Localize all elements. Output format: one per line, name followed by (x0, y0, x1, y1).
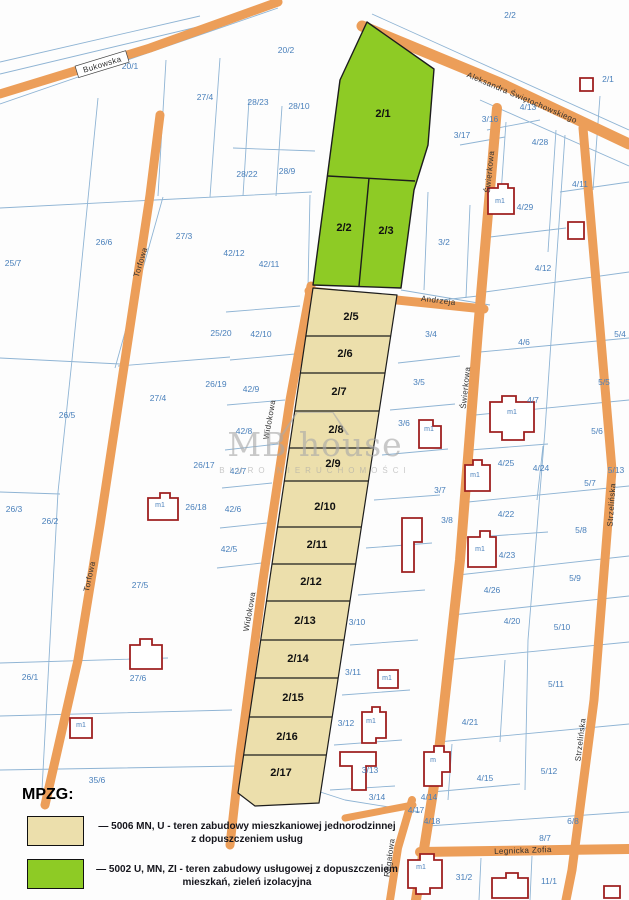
parcel-number-label: 4/26 (484, 585, 501, 595)
parcel-number-label: 26/5 (59, 410, 76, 420)
svg-text:Strzelińska: Strzelińska (605, 483, 617, 527)
parcel-number-label: 5/10 (554, 622, 571, 632)
parcel-number-label: 20/2 (278, 45, 295, 55)
parcel-number-label: 3/4 (425, 329, 437, 339)
svg-text:2/15: 2/15 (282, 692, 303, 704)
svg-text:4/11: 4/11 (572, 179, 588, 189)
svg-text:4/22: 4/22 (498, 509, 515, 519)
parcel-number-label: 26/18 (185, 502, 207, 512)
svg-text:27/4: 27/4 (150, 393, 167, 403)
svg-text:4/7: 4/7 (527, 395, 539, 405)
parcel-number-label: 42/7 (230, 466, 247, 476)
parcel-number-label: 28/10 (288, 101, 310, 111)
parcel-number-label: 4/11 (572, 179, 588, 189)
parcel-number-label: 3/17 (454, 130, 471, 140)
parcel-number-label: 4/14 (421, 792, 438, 802)
legend-line: — 5006 MN, U - teren zabudowy mieszkanio… (88, 820, 406, 833)
parcel-number-label: 4/29 (517, 202, 534, 212)
svg-text:4/17: 4/17 (408, 805, 425, 815)
parcel-number-label: 26/17 (193, 460, 215, 470)
parcel-number-label: 42/10 (250, 329, 272, 339)
parcel-number-label: 27/4 (150, 393, 167, 403)
plot-number-label: 2/7 (331, 386, 346, 398)
svg-text:28/10: 28/10 (288, 101, 310, 111)
svg-text:5/13: 5/13 (608, 465, 625, 475)
building-outline (568, 222, 584, 239)
svg-text:m1: m1 (76, 722, 86, 729)
building-m1-label: m1 (366, 718, 376, 725)
parcel-number-label: 28/22 (236, 169, 258, 179)
svg-text:28/22: 28/22 (236, 169, 258, 179)
building-outline (492, 873, 528, 898)
parcel-number-label: 5/13 (608, 465, 625, 475)
svg-text:26/2: 26/2 (42, 516, 59, 526)
svg-text:2/3: 2/3 (378, 225, 393, 237)
cadastral-map-image: 20/120/22/22/127/428/2328/1028/2228/93/1… (0, 0, 629, 900)
svg-text:11/1: 11/1 (541, 876, 557, 886)
parcel-number-label: 3/5 (413, 377, 425, 387)
parcel-number-label: 3/11 (345, 667, 361, 677)
svg-text:3/16: 3/16 (482, 114, 499, 124)
parcel-number-label: 4/28 (532, 137, 549, 147)
svg-text:4/14: 4/14 (421, 792, 438, 802)
svg-text:m1: m1 (507, 409, 517, 416)
building-m1-label: m1 (470, 472, 480, 479)
building-outline (419, 420, 441, 448)
svg-text:m1: m1 (475, 546, 485, 553)
svg-text:3/5: 3/5 (413, 377, 425, 387)
plot-number-label: 2/1 (375, 108, 390, 120)
svg-text:25/7: 25/7 (5, 258, 22, 268)
building-m1-label: m1 (76, 722, 86, 729)
svg-text:2/17: 2/17 (270, 767, 291, 779)
building-m1-label: m (430, 757, 436, 764)
parcel-number-label: 3/13 (362, 765, 379, 775)
parcel-number-label: 4/6 (518, 337, 530, 347)
parcel-number-label: 3/16 (482, 114, 499, 124)
svg-text:42/10: 42/10 (250, 329, 272, 339)
svg-text:3/8: 3/8 (441, 515, 453, 525)
svg-text:26/5: 26/5 (59, 410, 76, 420)
parcel-number-label: 26/2 (42, 516, 59, 526)
svg-text:3/2: 3/2 (438, 237, 450, 247)
building-m1-label: m1 (424, 426, 434, 433)
svg-text:8/7: 8/7 (539, 833, 551, 843)
parcel-number-label: 3/7 (434, 485, 446, 495)
svg-text:4/23: 4/23 (499, 550, 516, 560)
parcel-number-label: 35/6 (89, 775, 106, 785)
legend-item-u-mn-zi: — 5002 U, MN, ZI - teren zabudowy usługo… (88, 863, 406, 889)
road-name-label: Strzelińska (605, 483, 617, 527)
svg-text:2/9: 2/9 (325, 458, 340, 470)
parcel-number-label: 42/5 (221, 544, 238, 554)
parcel-number-label: 4/23 (499, 550, 516, 560)
parcel-number-label: 3/8 (441, 515, 453, 525)
svg-text:42/9: 42/9 (243, 384, 260, 394)
parcel-number-label: 5/11 (548, 679, 564, 689)
svg-text:2/7: 2/7 (331, 386, 346, 398)
plot-number-label: 2/15 (282, 692, 303, 704)
svg-text:3/4: 3/4 (425, 329, 437, 339)
svg-text:2/16: 2/16 (276, 731, 297, 743)
parcel-number-label: 26/1 (22, 672, 39, 682)
svg-text:35/6: 35/6 (89, 775, 106, 785)
svg-text:27/6: 27/6 (130, 673, 147, 683)
svg-text:42/8: 42/8 (236, 426, 253, 436)
svg-text:4/18: 4/18 (424, 816, 441, 826)
svg-text:3/12: 3/12 (338, 718, 355, 728)
svg-text:42/6: 42/6 (225, 504, 242, 514)
svg-text:2/14: 2/14 (287, 653, 309, 665)
plot-number-label: 2/3 (378, 225, 393, 237)
parcel-number-label: 3/6 (398, 418, 410, 428)
road-strzelinska (566, 128, 612, 900)
svg-text:5/4: 5/4 (614, 329, 626, 339)
svg-text:3/14: 3/14 (369, 792, 386, 802)
svg-text:42/5: 42/5 (221, 544, 238, 554)
parcel-number-label: 5/7 (584, 478, 596, 488)
svg-text:4/15: 4/15 (477, 773, 494, 783)
legend-item-mn-u: — 5006 MN, U - teren zabudowy mieszkanio… (88, 820, 406, 846)
building-m1-label: m1 (495, 198, 505, 205)
svg-text:4/21: 4/21 (462, 717, 479, 727)
parcel-number-label: 4/18 (424, 816, 441, 826)
svg-text:m1: m1 (416, 864, 426, 871)
svg-text:5/6: 5/6 (591, 426, 603, 436)
building-m1-label: m1 (475, 546, 485, 553)
svg-text:Widokowa: Widokowa (262, 399, 278, 440)
svg-text:3/7: 3/7 (434, 485, 446, 495)
parcel-number-label: 42/8 (236, 426, 253, 436)
parcel-number-label: 31/2 (456, 872, 473, 882)
svg-text:Torfowa: Torfowa (132, 246, 150, 278)
svg-text:3/10: 3/10 (349, 617, 366, 627)
building-outline (130, 639, 162, 669)
svg-text:4/12: 4/12 (535, 263, 552, 273)
parcel-number-label: 28/23 (247, 97, 269, 107)
svg-text:31/2: 31/2 (456, 872, 473, 882)
parcel-number-label: 2/1 (602, 74, 614, 84)
parcel-number-label: 4/20 (504, 616, 521, 626)
svg-text:27/3: 27/3 (176, 231, 193, 241)
road-bukowska (0, 2, 278, 94)
parcel-number-label: 27/5 (132, 580, 149, 590)
svg-text:2/1: 2/1 (602, 74, 614, 84)
plot-number-label: 2/12 (300, 576, 321, 588)
svg-text:2/1: 2/1 (375, 108, 390, 120)
parcel-number-label: 4/7 (527, 395, 539, 405)
svg-text:2/8: 2/8 (328, 424, 343, 436)
parcel-number-label: 6/8 (567, 816, 579, 826)
svg-text:4/24: 4/24 (533, 463, 550, 473)
parcel-number-label: 42/9 (243, 384, 260, 394)
plot-number-label: 2/6 (337, 348, 352, 360)
svg-text:2/10: 2/10 (314, 501, 335, 513)
svg-text:26/3: 26/3 (6, 504, 23, 514)
svg-text:20/2: 20/2 (278, 45, 295, 55)
parcel-number-label: 4/12 (535, 263, 552, 273)
road-name-label: Widokowa (262, 399, 278, 440)
parcel-number-label: 3/12 (338, 718, 355, 728)
svg-text:m1: m1 (382, 675, 392, 682)
building-m1-label: m1 (507, 409, 517, 416)
svg-text:27/5: 27/5 (132, 580, 149, 590)
svg-text:2/11: 2/11 (307, 539, 328, 551)
svg-text:m1: m1 (424, 426, 434, 433)
parcel-number-label: 25/7 (5, 258, 22, 268)
svg-text:3/6: 3/6 (398, 418, 410, 428)
svg-text:26/19: 26/19 (205, 379, 227, 389)
svg-text:5/5: 5/5 (598, 377, 610, 387)
plot-number-label: 2/14 (287, 653, 309, 665)
svg-text:4/29: 4/29 (517, 202, 534, 212)
svg-text:2/12: 2/12 (300, 576, 321, 588)
parcel-number-label: 4/17 (408, 805, 425, 815)
building-m1-label: m1 (155, 502, 165, 509)
parcel-number-label: 25/20 (210, 328, 232, 338)
plot-number-label: 2/10 (314, 501, 335, 513)
parcel-number-label: 5/5 (598, 377, 610, 387)
parcel-number-label: 42/11 (259, 259, 280, 269)
parcel-number-label: 2/2 (504, 10, 516, 20)
building-m1-label: m1 (416, 864, 426, 871)
road-stub (345, 805, 413, 818)
building-outline (408, 854, 442, 894)
parcel-number-label: 3/10 (349, 617, 366, 627)
svg-text:42/12: 42/12 (223, 248, 245, 258)
legend-swatch-u-mn-zi (27, 859, 84, 889)
parcel-number-label: 4/25 (498, 458, 515, 468)
parcel-number-label: 26/6 (96, 237, 113, 247)
svg-text:26/1: 26/1 (22, 672, 39, 682)
svg-text:42/7: 42/7 (230, 466, 247, 476)
parcel-number-label: 26/19 (205, 379, 227, 389)
plot-number-label: 2/13 (294, 615, 315, 627)
svg-text:4/6: 4/6 (518, 337, 530, 347)
svg-text:26/17: 26/17 (193, 460, 215, 470)
svg-text:m1: m1 (495, 198, 505, 205)
legend-line: z dopuszczeniem usług (88, 833, 406, 846)
svg-text:2/6: 2/6 (337, 348, 352, 360)
svg-text:5/11: 5/11 (548, 679, 564, 689)
zone-u-mn-zi-parcels (313, 22, 434, 288)
parcel-number-label: 5/8 (575, 525, 587, 535)
building-m1-label: m1 (382, 675, 392, 682)
legend-line: — 5002 U, MN, ZI - teren zabudowy usługo… (88, 863, 406, 876)
svg-text:42/11: 42/11 (259, 259, 280, 269)
legend-swatch-mn-u (27, 816, 84, 846)
svg-text:4/20: 4/20 (504, 616, 521, 626)
svg-text:4/26: 4/26 (484, 585, 501, 595)
svg-text:4/28: 4/28 (532, 137, 549, 147)
svg-text:3/13: 3/13 (362, 765, 379, 775)
parcel-number-label: 5/12 (541, 766, 558, 776)
parcel-number-label: 28/9 (279, 166, 296, 176)
parcel-number-label: 5/4 (614, 329, 626, 339)
svg-text:5/10: 5/10 (554, 622, 571, 632)
svg-text:m1: m1 (155, 502, 165, 509)
svg-text:27/4: 27/4 (197, 92, 214, 102)
svg-text:2/5: 2/5 (343, 311, 358, 323)
svg-text:m: m (430, 757, 436, 764)
svg-text:m1: m1 (470, 472, 480, 479)
plot-number-label: 2/8 (328, 424, 343, 436)
parcel-number-label: 8/7 (539, 833, 551, 843)
building-outline (362, 707, 386, 743)
parcel-number-label: 4/15 (477, 773, 494, 783)
svg-text:4/25: 4/25 (498, 458, 515, 468)
legend-line: mieszkań, zieleń izolacyjna (88, 876, 406, 889)
svg-text:5/7: 5/7 (584, 478, 596, 488)
plot-number-label: 2/2 (336, 222, 351, 234)
svg-text:25/20: 25/20 (210, 328, 232, 338)
parcel-number-label: 27/3 (176, 231, 193, 241)
building-outline (402, 518, 422, 572)
svg-text:3/11: 3/11 (345, 667, 361, 677)
svg-text:2/13: 2/13 (294, 615, 315, 627)
parcel-number-label: 5/6 (591, 426, 603, 436)
svg-text:2/2: 2/2 (336, 222, 351, 234)
road-name-label: Bukowska (75, 51, 129, 78)
svg-text:5/9: 5/9 (569, 573, 581, 583)
plot-number-label: 2/17 (270, 767, 291, 779)
parcel-number-label: 42/12 (223, 248, 245, 258)
parcel-number-label: 3/2 (438, 237, 450, 247)
svg-text:3/17: 3/17 (454, 130, 471, 140)
parcel-number-label: 3/14 (369, 792, 386, 802)
svg-text:6/8: 6/8 (567, 816, 579, 826)
road-name-label: Torfowa (132, 246, 150, 278)
svg-text:2/2: 2/2 (504, 10, 516, 20)
building-outline (580, 78, 593, 91)
plot-number-label: 2/11 (307, 539, 328, 551)
parcel-number-label: 11/1 (541, 876, 557, 886)
svg-text:26/6: 26/6 (96, 237, 113, 247)
svg-text:5/12: 5/12 (541, 766, 558, 776)
parcel-number-label: 4/22 (498, 509, 515, 519)
plot-number-label: 2/16 (276, 731, 297, 743)
svg-text:28/23: 28/23 (247, 97, 269, 107)
building-outline (604, 886, 620, 898)
parcel-number-label: 27/6 (130, 673, 147, 683)
plot-number-label: 2/5 (343, 311, 358, 323)
road-torfowa (45, 115, 160, 805)
svg-text:m1: m1 (366, 718, 376, 725)
legend-title: MPZG: (22, 786, 74, 804)
parcel-number-label: 4/21 (462, 717, 479, 727)
parcel-number-label: 42/6 (225, 504, 242, 514)
parcel-number-label: 26/3 (6, 504, 23, 514)
svg-text:26/18: 26/18 (185, 502, 207, 512)
parcel-number-label: 5/9 (569, 573, 581, 583)
building-outline (424, 746, 450, 786)
svg-text:5/8: 5/8 (575, 525, 587, 535)
svg-text:28/9: 28/9 (279, 166, 296, 176)
map-canvas: 20/120/22/22/127/428/2328/1028/2228/93/1… (0, 0, 629, 900)
parcel-number-label: 27/4 (197, 92, 214, 102)
plot-number-label: 2/9 (325, 458, 340, 470)
parcel-2-1 (313, 22, 434, 288)
parcel-number-label: 4/24 (533, 463, 550, 473)
